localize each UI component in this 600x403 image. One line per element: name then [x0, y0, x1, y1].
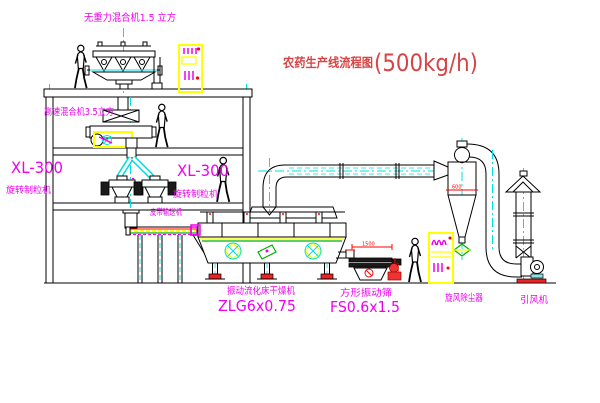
- sieve-width-dimension: 1500: [362, 242, 375, 248]
- high-speed-mixer: [86, 97, 156, 148]
- top-mixer-label: 无重力混合机1.5 立方: [84, 11, 176, 24]
- granulator-right-model: XL-300: [177, 161, 229, 180]
- person-floor2: [156, 104, 168, 147]
- fan-label: 引风机: [520, 294, 548, 306]
- cyclone-dimension: 600: [452, 185, 462, 191]
- belt-conveyor-label: 皮带输送机: [150, 207, 182, 218]
- rotary-granulator-right: [134, 176, 176, 203]
- process-flow-diagram: 1500 545 600: [0, 0, 600, 403]
- page-title-capacity: (500kg/h): [374, 49, 478, 77]
- granulator-left-name: 旋转制粒机: [6, 184, 51, 196]
- dryer-model: ZLG6x0.75: [218, 297, 296, 315]
- cyclone-label: 旋风除尘器: [445, 292, 483, 304]
- exhaust-duct: [248, 158, 446, 218]
- fluid-bed-dryer: [191, 212, 348, 279]
- control-cabinet-roof: [179, 45, 202, 92]
- granulator-right-name: 旋转制粒机: [173, 188, 218, 200]
- granulator-left-model: XL-300: [11, 158, 63, 177]
- belt-conveyor: [123, 210, 212, 283]
- mid-mixer-label: 高速混合机3.5立方: [44, 106, 114, 118]
- page-title: 农药生产线流程图: [282, 55, 373, 70]
- control-cabinet-ground: [429, 233, 453, 283]
- person-ground: [409, 238, 421, 282]
- induced-draft-fan: [517, 257, 546, 283]
- dryer-label: 振动流化床干燥机: [227, 285, 295, 297]
- sieve-model: FS0.6x1.5: [330, 298, 400, 316]
